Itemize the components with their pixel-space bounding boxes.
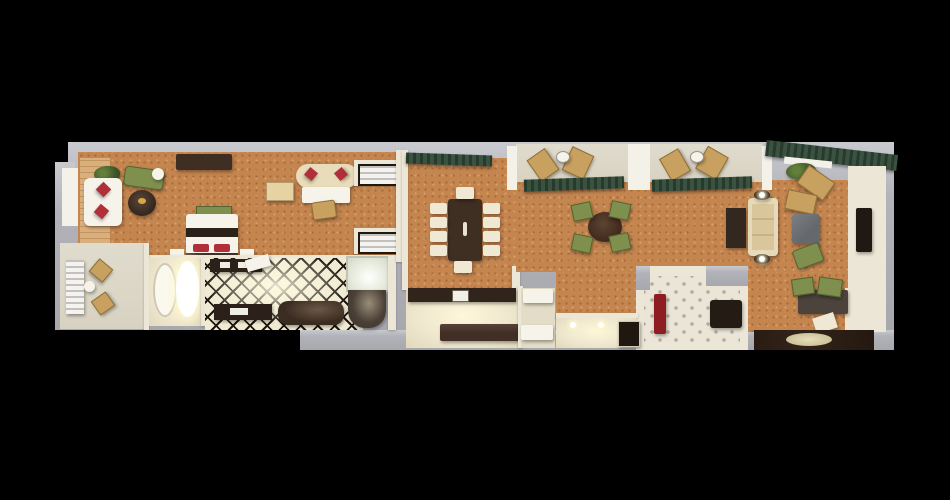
bed-pillow-right [214, 244, 230, 252]
balcony-pillar-left [507, 146, 517, 190]
southeast-wall [845, 288, 886, 332]
oval-tub [153, 263, 177, 317]
dining-table-centerpiece [463, 222, 467, 236]
patio-side-table [84, 281, 95, 292]
dining-chair-l1 [430, 203, 447, 214]
kitchen-island [440, 324, 520, 341]
ottoman [266, 182, 294, 201]
study-piano [710, 300, 742, 328]
round-side-table [152, 168, 164, 180]
service-table-lower [521, 325, 553, 340]
gray-coffee-table [792, 214, 820, 244]
entry-rug [786, 333, 832, 346]
dining-chair-r3 [483, 231, 500, 242]
dining-chair-r4 [483, 245, 500, 256]
bath-right-wall [388, 256, 396, 330]
oval-shower-basin [176, 261, 199, 317]
desk-chair-green-right [817, 276, 843, 297]
dining-chair-head-bottom [454, 261, 472, 273]
floorplan-stage [0, 0, 950, 500]
bedroom-tv-console [176, 154, 232, 170]
balcony-two-table [690, 151, 704, 163]
table-lamp-bottom-glow [759, 256, 765, 262]
dining-chair-l4 [430, 245, 447, 256]
dining-chair-head-top [456, 187, 474, 199]
dark-shower-basin [348, 290, 386, 328]
vanity-lower-sink [230, 308, 248, 315]
desk-chair [311, 199, 337, 220]
microwave [452, 290, 469, 302]
study-pillar-right [706, 266, 748, 286]
desk-chair-green-left [791, 277, 815, 297]
bedroom-left-niche [62, 168, 78, 226]
slatted-lounger [66, 260, 84, 314]
bed-pillow-left [193, 244, 209, 252]
dining-chair-r2 [483, 217, 500, 228]
glass-shower [346, 256, 392, 292]
dining-chair-l3 [430, 231, 447, 242]
great-room-floor-south [556, 272, 642, 318]
wardrobe-lower [358, 232, 400, 254]
dining-chair-l2 [430, 217, 447, 228]
wall-tv [856, 208, 872, 252]
dark-soaking-tub [278, 301, 344, 325]
minibar-cabinet [618, 321, 640, 347]
hallway-light-one [570, 322, 576, 328]
study-pillar-left [636, 266, 650, 290]
study-red-sofa [654, 294, 666, 334]
service-table-upper [523, 289, 553, 303]
wardrobe-upper [358, 164, 400, 186]
table-lamp-top-glow [759, 192, 765, 198]
coffee-table-tray [138, 198, 146, 204]
dining-chair-r1 [483, 203, 500, 214]
vanity-upper-sink-left [220, 262, 230, 268]
hallway-light-two [598, 322, 604, 328]
dining-left-wall [402, 150, 408, 290]
cream-sofa-cushions [752, 204, 774, 250]
balcony-one-table [556, 151, 570, 163]
console-table [726, 208, 746, 248]
balcony-pillar-middle [628, 144, 650, 190]
bed-throw-stripe [186, 228, 238, 237]
